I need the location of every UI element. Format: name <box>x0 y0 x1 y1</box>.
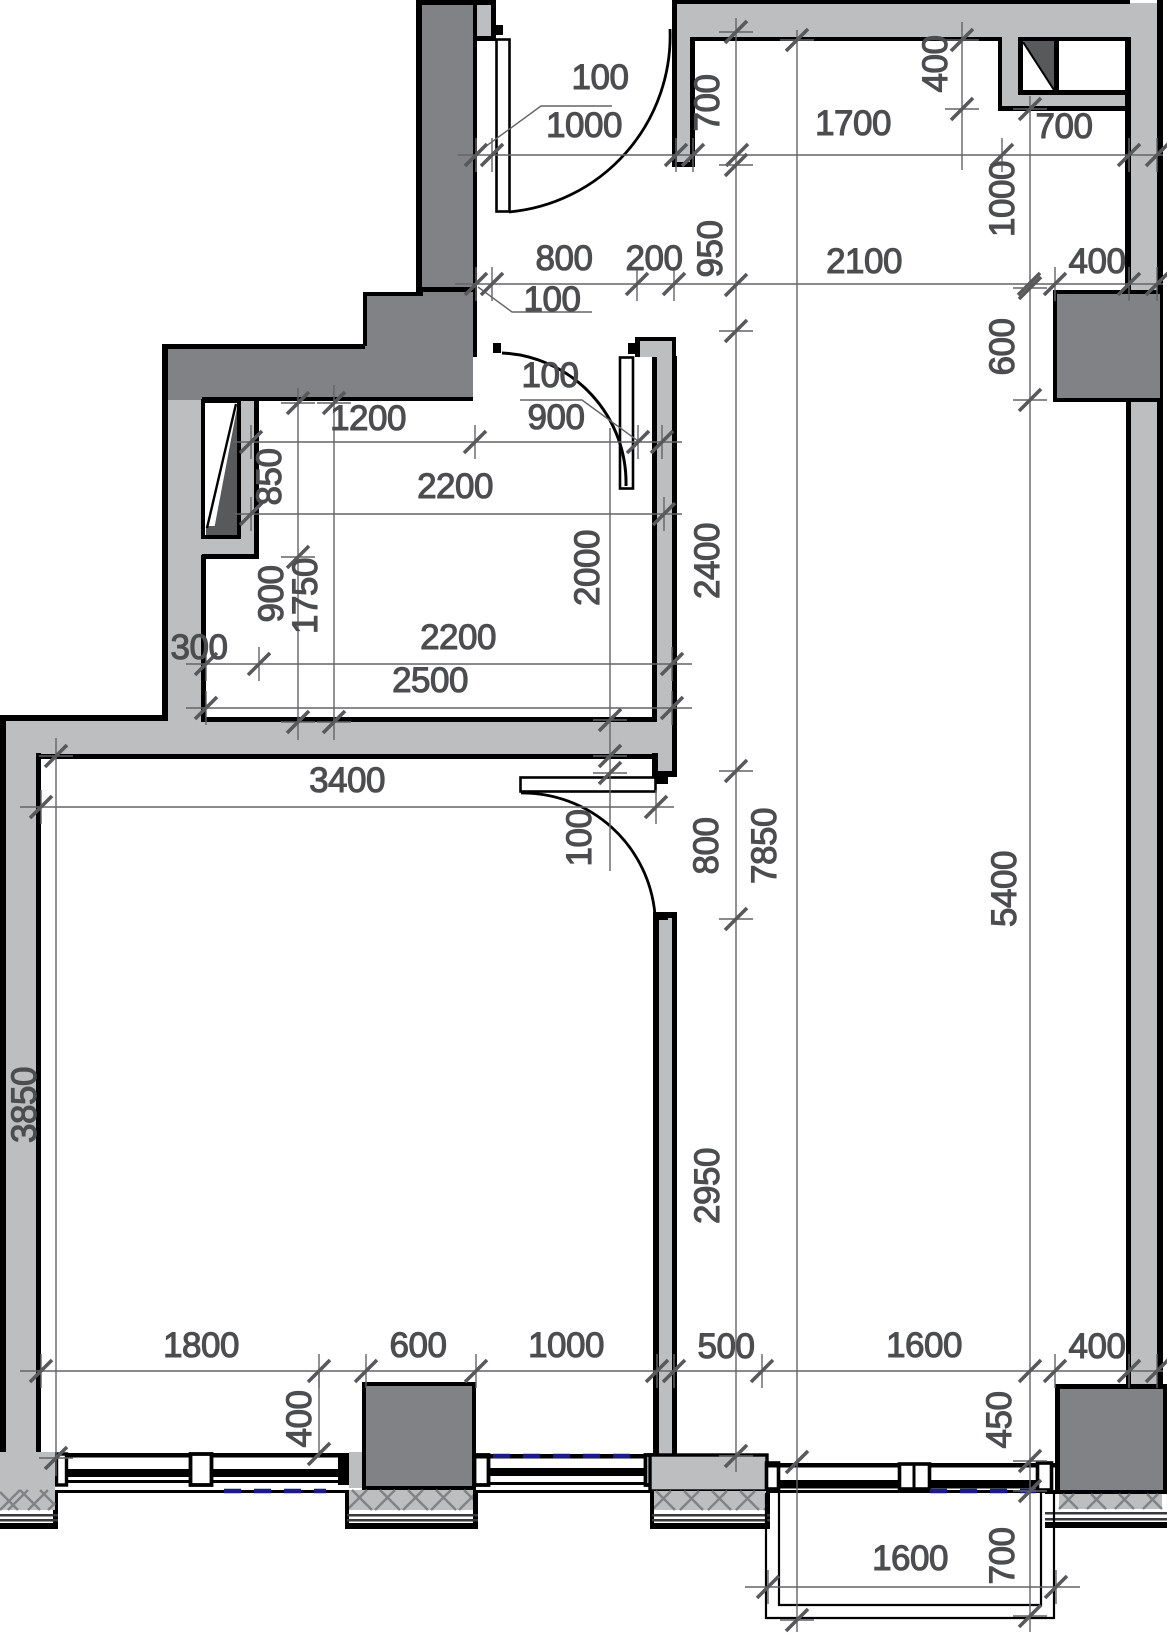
svg-text:2400: 2400 <box>688 523 727 599</box>
svg-text:1600: 1600 <box>872 1539 948 1578</box>
svg-text:900: 900 <box>528 398 585 437</box>
svg-text:100: 100 <box>522 356 579 395</box>
svg-text:600: 600 <box>390 1326 447 1365</box>
svg-text:7850: 7850 <box>745 808 784 884</box>
svg-text:200: 200 <box>626 239 683 278</box>
svg-text:700: 700 <box>688 75 727 132</box>
svg-text:1800: 1800 <box>163 1326 239 1365</box>
svg-text:450: 450 <box>980 1392 1019 1449</box>
svg-text:400: 400 <box>1069 1327 1126 1366</box>
svg-text:1600: 1600 <box>886 1326 962 1365</box>
svg-text:1700: 1700 <box>815 104 891 143</box>
svg-text:2000: 2000 <box>568 530 607 606</box>
svg-text:400: 400 <box>916 36 955 93</box>
svg-text:1000: 1000 <box>546 106 622 145</box>
svg-text:100: 100 <box>560 810 599 867</box>
svg-text:1200: 1200 <box>330 399 406 438</box>
svg-text:400: 400 <box>1069 242 1126 281</box>
svg-text:1750: 1750 <box>286 558 325 634</box>
svg-text:700: 700 <box>983 1528 1022 1585</box>
svg-text:100: 100 <box>524 280 581 319</box>
svg-text:3400: 3400 <box>309 761 385 800</box>
svg-text:100: 100 <box>572 58 629 97</box>
svg-text:500: 500 <box>698 1327 755 1366</box>
svg-text:950: 950 <box>691 221 730 278</box>
svg-text:3850: 3850 <box>5 1067 44 1143</box>
svg-text:850: 850 <box>250 449 289 506</box>
svg-text:800: 800 <box>536 239 593 278</box>
svg-text:2200: 2200 <box>420 618 496 657</box>
svg-text:2500: 2500 <box>392 661 468 700</box>
svg-text:2100: 2100 <box>826 242 902 281</box>
svg-text:2950: 2950 <box>688 1148 727 1224</box>
svg-text:2200: 2200 <box>417 467 493 506</box>
svg-text:600: 600 <box>983 319 1022 376</box>
svg-text:700: 700 <box>1036 107 1093 146</box>
svg-text:800: 800 <box>687 818 726 875</box>
svg-text:5400: 5400 <box>985 851 1024 927</box>
svg-text:300: 300 <box>171 628 228 667</box>
svg-text:400: 400 <box>280 1391 319 1448</box>
svg-text:1000: 1000 <box>983 161 1022 237</box>
svg-text:1000: 1000 <box>528 1326 604 1365</box>
